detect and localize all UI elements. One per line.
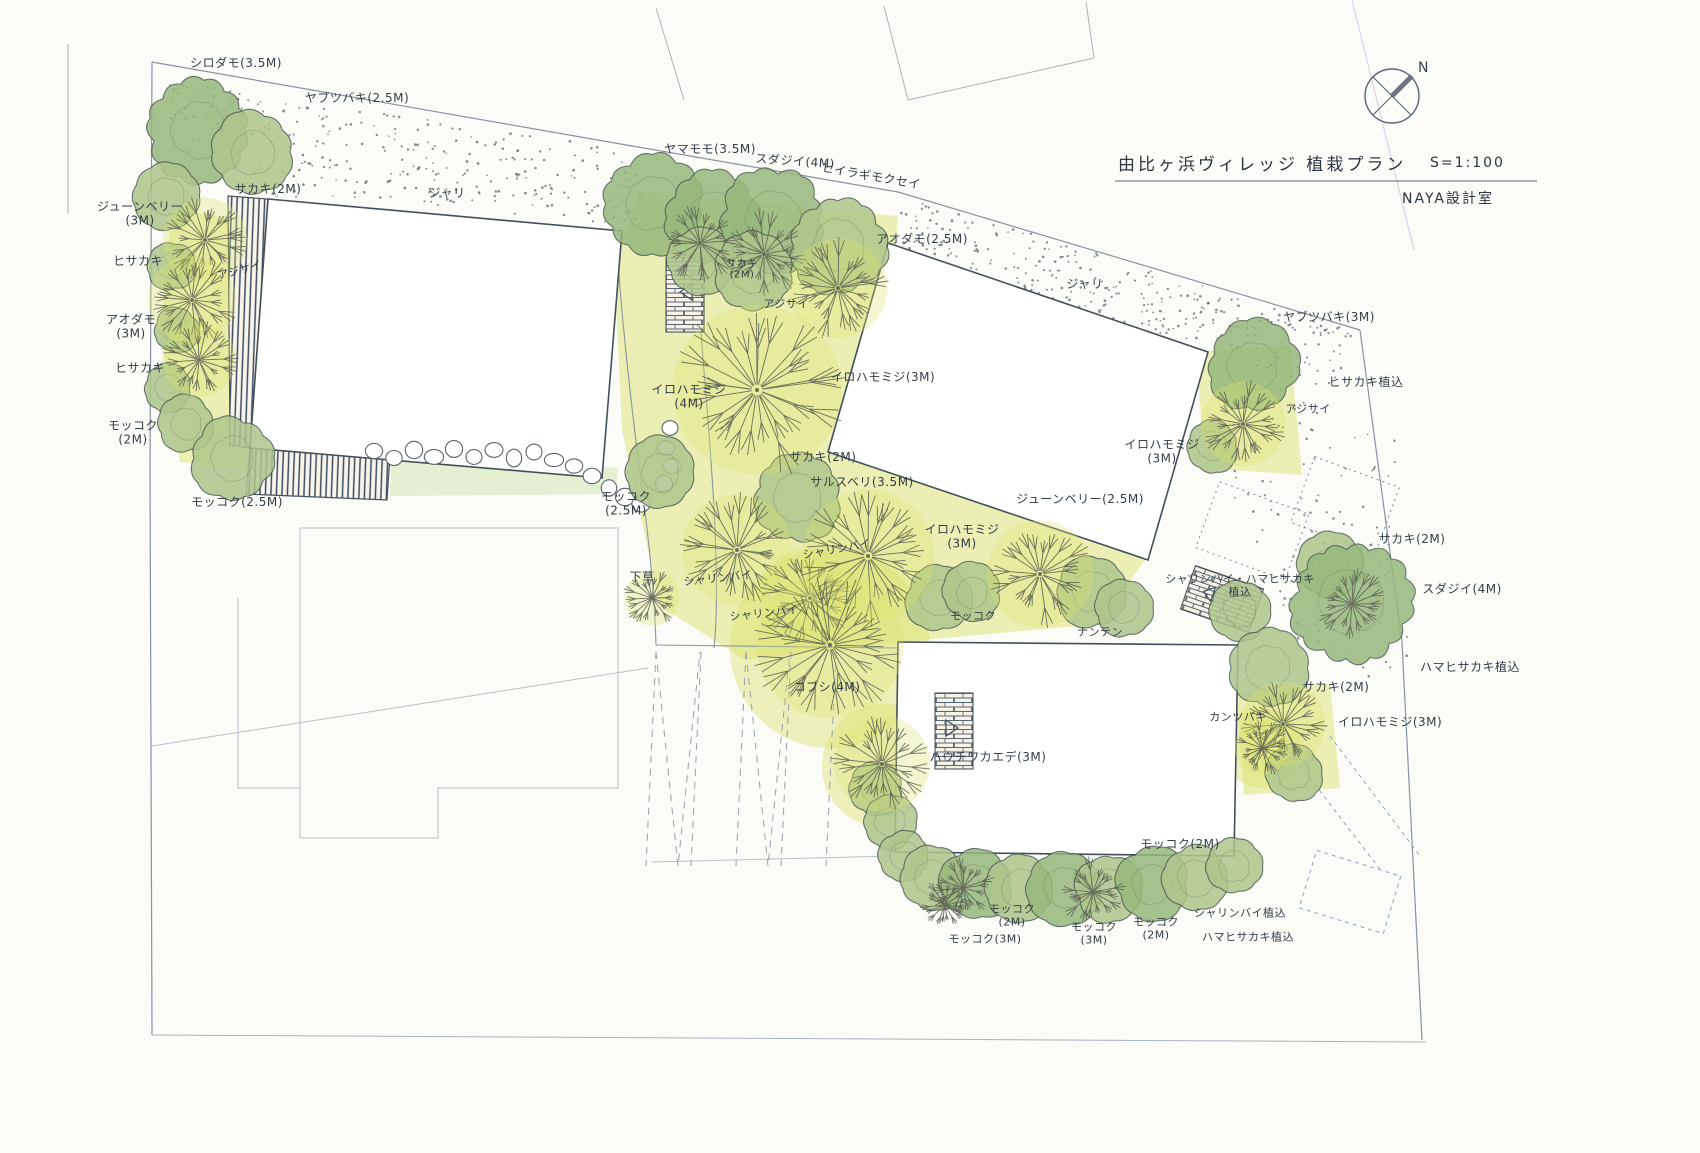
plant-label: ヤブツバキ(3M) [1283, 311, 1375, 325]
plant-label: ジャリ [1067, 278, 1104, 292]
plant-label: ヤマモモ(3.5M) [664, 143, 756, 157]
plant-label: シャリンバイ・ハマヒサカキ 植込 [1165, 573, 1315, 598]
sheet-scale: S=1:100 [1430, 155, 1505, 171]
plant-label: 下草 [629, 571, 654, 585]
plant-label: アジサイ [1285, 404, 1331, 417]
north-label: N [1418, 60, 1428, 76]
planting-plan-sheet: N シロダモ(3.5M)ヤブツバキ(2.5M)サカキ(2M)ジューンベリー (3… [0, 0, 1700, 1153]
plant-label: ヒサカキ植込 [1328, 376, 1403, 390]
plant-label: モッコク (2M) [989, 903, 1035, 928]
plant-label: ハマヒサカキ植込 [1420, 661, 1520, 675]
plant-label: アオダモ (3M) [106, 313, 156, 340]
plant-label: モッコク (2M) [1133, 916, 1179, 941]
plant-label: ジューンベリー(2.5M) [1016, 493, 1144, 507]
building-1 [250, 199, 622, 478]
plant-label: サカキ(2M) [790, 451, 857, 465]
plant-label: サカキ(2M) [235, 183, 302, 197]
plant-label: イロハモミジ (4M) [651, 383, 726, 410]
plant-label: アジサイ [763, 299, 809, 312]
plant-label: サカキ (2M) [726, 259, 758, 282]
plant-label: イロハモミジ(3M) [831, 371, 935, 385]
plant-label: モッコク (3M) [1071, 921, 1117, 946]
plant-label: イロハモミジ (3M) [1124, 438, 1199, 465]
plant-label: ナンテン [1077, 627, 1123, 640]
plant-label: モッコク (2M) [108, 419, 158, 446]
plant-label: サカキ(2M) [1303, 681, 1370, 695]
plant-label: サルスベリ(3.5M) [810, 476, 913, 490]
plant-label: ハマヒサカキ植込 [1202, 932, 1294, 945]
scan-crease-line [1352, 0, 1414, 250]
sheet-title: 由比ヶ浜ヴィレッジ 植栽プラン [1118, 150, 1406, 175]
plant-label: ハウチワカエデ(3M) [930, 751, 1047, 765]
plant-label: アオダモ(2.5M) [876, 233, 968, 247]
plant-label: ジューンベリー (3M) [97, 200, 183, 227]
plant-label: モッコク(3M) [948, 934, 1021, 947]
plant-label: モッコク(2.5M) [191, 496, 283, 510]
plant-label: モッコク(2M) [1140, 838, 1219, 852]
plant-label: ヒサカキ [115, 362, 165, 376]
plant-label: スダジイ(4M) [1422, 583, 1502, 597]
design-office: NAYA設計室 [1402, 188, 1494, 208]
plant-label: ジャリ [429, 187, 466, 201]
plant-label: シャリンバイ植込 [1194, 908, 1286, 921]
plant-label: カンツバキ [1209, 712, 1267, 725]
plant-label: ヤブツバキ(2.5M) [305, 92, 409, 106]
plant-label: モッコク [950, 611, 996, 624]
plant-label: サカキ(2M) [1379, 533, 1446, 547]
plant-label: イロハモミジ(3M) [1338, 716, 1442, 730]
plant-label: コブシ(4M) [794, 681, 861, 695]
plant-label: モッコク (2.5M) [601, 490, 651, 517]
plant-label: ヒサカキ [113, 255, 163, 269]
plant-label: シロダモ(3.5M) [190, 57, 282, 71]
plant-label: イロハモミジ (3M) [924, 523, 999, 550]
